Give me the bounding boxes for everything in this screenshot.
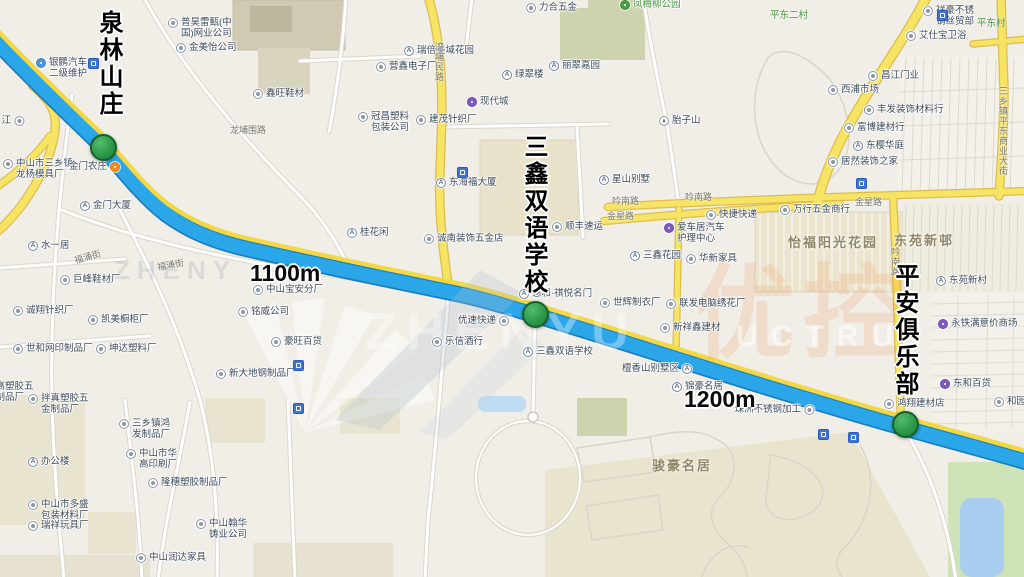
road-label: 福涌街	[156, 256, 185, 273]
bus-icon	[36, 58, 46, 68]
poi-label: 水一居	[41, 241, 70, 252]
poi-label: 拌真塑胶五金制品厂	[41, 394, 89, 415]
map-poi[interactable]: 艾仕宝卫浴	[906, 31, 967, 42]
poi-icon	[126, 449, 136, 459]
map-poi[interactable]: 新大地钢制品厂	[216, 369, 296, 380]
poi-label: 桂花闲	[360, 228, 389, 239]
poi-label: 惠和·祺悦名门	[532, 289, 592, 300]
map-poi[interactable]: 东海福大厦	[436, 178, 497, 189]
road-label: 金星路	[607, 209, 634, 222]
poi-icon	[424, 234, 434, 244]
tree-icon	[620, 0, 630, 10]
map-poi[interactable]: 凯美橱柜厂	[88, 315, 149, 326]
map-poi[interactable]: 东樱华庭	[853, 141, 904, 152]
road-label: 金星路	[855, 195, 882, 208]
map-poi[interactable]: 中山翰华铸业公司	[196, 519, 247, 540]
poi-label: 豪旺百货	[284, 337, 322, 348]
map-poi[interactable]: 乐信酒行	[432, 337, 483, 348]
poi-label: 金门大厦	[93, 201, 131, 212]
poi-label: 金门农庄	[69, 162, 107, 173]
bldg-icon	[28, 457, 38, 467]
bldg-icon	[523, 347, 533, 357]
map-poi[interactable]: 银鹏汽车二级维护	[36, 58, 87, 79]
mtn-icon	[659, 116, 669, 126]
poi-label: 永铁满意价商场	[951, 319, 1018, 330]
mall-icon	[940, 379, 950, 389]
poi-icon	[196, 519, 206, 529]
poi-label: 新大地钢制品厂	[229, 369, 296, 380]
poi-label: 三鑫花园	[643, 251, 681, 262]
poi-icon	[780, 205, 790, 215]
bldg-icon	[630, 251, 640, 261]
bldg-icon	[682, 364, 692, 374]
poi-label: 东和百货	[953, 379, 991, 390]
road-label: 福涌街	[73, 247, 103, 267]
map-poi[interactable]: 冠昌塑料包装公司	[358, 112, 409, 133]
poi-label: 胎子山	[672, 116, 701, 127]
poi-icon	[216, 369, 226, 379]
poi-label: 中山宝安分厂	[266, 285, 323, 296]
poi-icon	[884, 399, 894, 409]
map-poi[interactable]: 三鑫花园	[630, 251, 681, 262]
map-poi[interactable]: 东苑新村	[936, 276, 987, 287]
poi-icon	[88, 315, 98, 325]
bldg-icon	[599, 175, 609, 185]
marker-sanxin-school[interactable]	[522, 301, 549, 328]
map-poi[interactable]: 金门农庄	[69, 162, 120, 173]
map-poi[interactable]: 豪旺百货	[271, 337, 322, 348]
poi-icon	[96, 344, 106, 354]
map-poi[interactable]: 快捷快递	[706, 210, 757, 221]
map-poi[interactable]: 隆穗塑胶制品厂	[148, 478, 228, 489]
poi-label: 中山市三乡镇龙扬模具厂	[16, 159, 73, 180]
poi-label: 万行五金商行	[793, 205, 850, 216]
map-poi[interactable]: 铭威公司	[238, 307, 289, 318]
poi-label: 金美怡公司	[189, 43, 237, 54]
poi-icon	[416, 115, 426, 125]
map-poi[interactable]: 江	[1, 116, 24, 127]
bldg-icon	[502, 70, 512, 80]
map-poi[interactable]: 丰发装饰材料行	[864, 105, 944, 116]
poi-label: 华新家具	[699, 254, 737, 265]
poi-label: 银鹏汽车二级维护	[49, 58, 87, 79]
poi-label: 办公楼	[41, 457, 70, 468]
map-poi[interactable]: 檀香山别墅区	[622, 364, 692, 375]
map-poi[interactable]: 桂花闲	[347, 228, 389, 239]
poi-icon	[499, 316, 509, 326]
map-poi[interactable]: 珠洲不锈钢加工	[734, 405, 814, 416]
poi-label: 瑞祥玩具厂	[41, 521, 89, 532]
gate-sign-icon	[293, 403, 304, 414]
poi-icon	[432, 337, 442, 347]
poi-icon	[358, 112, 368, 122]
poi-label: 艾仕宝卫浴	[919, 31, 967, 42]
map-poi[interactable]: 水一居	[28, 241, 70, 252]
poi-icon	[28, 394, 38, 404]
poi-icon	[828, 157, 838, 167]
map-poi[interactable]: 世辉制衣厂	[600, 298, 661, 309]
poi-icon	[13, 306, 23, 316]
poi-label: 三鑫双语学校	[536, 347, 593, 358]
poi-label: 建茂针织厂	[429, 115, 477, 126]
bldg-icon	[853, 141, 863, 151]
poi-label: 江	[1, 116, 11, 127]
poi-label: 中山翰华铸业公司	[209, 519, 247, 540]
map-poi[interactable]: 营鑫电子厂	[376, 62, 437, 73]
poi-label: 丽翠嘉园	[562, 61, 600, 72]
poi-label: 巨峰鞋材厂	[73, 275, 121, 286]
map-poi[interactable]: 丽翠嘉园	[549, 61, 600, 72]
road-label: 吟南路	[685, 190, 712, 203]
poi-label: 中山市多盛包装材料厂	[41, 500, 89, 521]
map-poi[interactable]: 中山市华高印刷厂	[126, 449, 177, 470]
poi-icon	[844, 123, 854, 133]
bldg-icon	[347, 228, 357, 238]
mall-icon	[664, 223, 674, 233]
bldg-icon	[404, 46, 414, 56]
map-poi[interactable]: 世和网印制品厂	[13, 344, 93, 355]
poi-icon	[868, 71, 878, 81]
poi-label: 东海福大厦	[449, 178, 497, 189]
map-poi[interactable]: 金门大厦	[80, 201, 131, 212]
poi-label: 优速快递	[458, 316, 496, 327]
area-label: 骏豪名居	[652, 455, 712, 474]
poi-icon	[686, 254, 696, 264]
poi-icon	[14, 116, 24, 126]
map-poi[interactable]: 普昊雷甄(中国)网业公司	[168, 18, 232, 39]
bldg-icon	[28, 241, 38, 251]
poi-label: 三乡镇鸿发制品厂	[132, 419, 170, 440]
road-label: 三乡镇平东商业大街	[997, 86, 1010, 176]
road-label: 湾埔民路	[433, 42, 446, 82]
bldg-icon	[672, 382, 682, 392]
poi-label: 坤达塑料厂	[109, 344, 157, 355]
map-poi[interactable]: 华新家具	[686, 254, 737, 265]
poi-icon	[600, 298, 610, 308]
poi-icon	[136, 553, 146, 563]
poi-label: 普昊雷甄(中国)网业公司	[181, 18, 232, 39]
poi-label: 凯美橱柜厂	[101, 315, 149, 326]
map-poi[interactable]: 居然装饰之家	[828, 157, 898, 168]
gate-sign-icon	[818, 429, 829, 440]
poi-label: 诚翔针织厂	[26, 306, 74, 317]
bldg-icon	[936, 276, 946, 286]
poi-label: 居然装饰之家	[841, 157, 898, 168]
poi-label: 顺丰速运	[565, 222, 603, 233]
poi-icon	[376, 62, 386, 72]
map-poi[interactable]: 诚南装饰五金店	[424, 234, 504, 245]
map-poi[interactable]: 中山市三乡镇龙扬模具厂	[3, 159, 73, 180]
poi-label: 快捷快递	[719, 210, 757, 221]
poi-label: 西浦市场	[841, 85, 879, 96]
area-label: 东苑新邨	[894, 230, 954, 249]
poi-icon	[148, 478, 158, 488]
poi-label: 世辉制衣厂	[613, 298, 661, 309]
bldg-icon	[80, 201, 90, 211]
poi-label: 诚南装饰五金店	[437, 234, 504, 245]
poi-icon	[3, 159, 13, 169]
map-poi[interactable]: 诚翔针织厂	[13, 306, 74, 317]
poi-label: 现代城	[480, 97, 509, 108]
village-label: 平东二村	[770, 7, 808, 21]
poi-icon	[666, 299, 676, 309]
poi-icon	[923, 6, 933, 16]
map-poi[interactable]: 优速快递	[458, 316, 509, 327]
poi-icon	[253, 285, 263, 295]
gate-sign-icon	[937, 10, 948, 21]
map-poi[interactable]: 三鑫双语学校	[523, 347, 593, 358]
road-label: 吟南路	[889, 247, 902, 277]
map-poi[interactable]: 新祥鑫建材	[660, 323, 721, 334]
marker-quanlin-resort[interactable]	[90, 134, 117, 161]
gate-sign-icon	[88, 58, 99, 69]
map-poi[interactable]: 西浦市场	[828, 85, 879, 96]
poi-label: 丰发装饰材料行	[877, 105, 944, 116]
village-label: 平东村	[977, 15, 1006, 29]
poi-icon	[660, 323, 670, 333]
poi-label: 珠洲不锈钢加工	[734, 405, 801, 416]
poi-label: 爱车居汽车护理中心	[677, 223, 725, 244]
poi-icon	[13, 344, 23, 354]
map-poi[interactable]: 永铁满意价商场	[938, 319, 1018, 330]
poi-label: 乐信酒行	[445, 337, 483, 348]
poi-label: 鑫旺鞋材	[266, 89, 304, 100]
poi-label: 绿翠楼	[515, 70, 544, 81]
poi-label: 中山市华高印刷厂	[139, 449, 177, 470]
map-poi[interactable]: 凤梅柳公园	[620, 0, 681, 11]
map-poi[interactable]: 惠和·祺悦名门	[519, 289, 592, 300]
map-poi[interactable]: 建茂针织厂	[416, 115, 477, 126]
poi-label: 东苑新村	[949, 276, 987, 287]
bldg-icon	[436, 178, 446, 188]
poi-label: 联发电脑绣花厂	[679, 299, 746, 310]
poi-icon	[906, 31, 916, 41]
map-poi[interactable]: 胎子山	[659, 116, 701, 127]
poi-label: 锦豪名居	[685, 382, 723, 393]
poi-icon	[864, 105, 874, 115]
poi-icon	[552, 222, 562, 232]
map-labels-layer: 银鹏汽车二级维护普昊雷甄(中国)网业公司金美怡公司鑫旺鞋材中山市三乡镇龙扬模具厂…	[0, 0, 1024, 577]
map-poi[interactable]: 锦豪名居	[672, 382, 723, 393]
poi-icon	[28, 500, 38, 510]
map-poi[interactable]: 绿翠楼	[502, 70, 544, 81]
poi-label: 星山别墅	[612, 175, 650, 186]
road-label: 龙埔围路	[230, 123, 266, 136]
map-poi[interactable]: 金美怡公司	[176, 43, 237, 54]
poi-icon	[60, 275, 70, 285]
poi-label: 昌江门业	[881, 71, 919, 82]
poi-label: 铭威公司	[251, 307, 289, 318]
poi-label: 世和网印制品厂	[26, 344, 93, 355]
map-poi[interactable]: 拌真塑胶五金制品厂	[28, 394, 89, 415]
bldg-icon	[549, 61, 559, 71]
map-poi[interactable]: 力合五金	[526, 3, 577, 14]
poi-label: 东樱华庭	[866, 141, 904, 152]
bldg-icon	[519, 289, 529, 299]
poi-icon	[176, 43, 186, 53]
poi-label: 中山润达家具	[149, 553, 206, 564]
poi-label: 凤梅柳公园	[633, 0, 681, 11]
poi-label: 营鑫电子厂	[389, 62, 437, 73]
poi-icon	[994, 397, 1004, 407]
poi-label: 檀香山别墅区	[622, 364, 679, 375]
map-poi[interactable]: 星山别墅	[599, 175, 650, 186]
poi-label: 和园百货	[1007, 397, 1024, 408]
poi-icon	[119, 419, 129, 429]
map-poi[interactable]: 东和百货	[940, 379, 991, 390]
road-label: 吟南路	[612, 194, 639, 207]
poi-icon	[238, 307, 248, 317]
poi-label: 隆穗塑胶制品厂	[161, 478, 228, 489]
poi-icon	[28, 521, 38, 531]
map-poi[interactable]: 鸿翔建材店	[884, 399, 945, 410]
map-poi[interactable]: 联发电脑绣花厂	[666, 299, 746, 310]
mall-icon	[938, 319, 948, 329]
gate-sign-icon	[856, 178, 867, 189]
map-poi[interactable]: 中山润达家具	[136, 553, 206, 564]
poi-icon	[253, 89, 263, 99]
map-viewport[interactable]: 优控 ZHENYU UCTRU ZHENY 银鹏汽车二级维护普昊雷甄(中国)网业…	[0, 0, 1024, 577]
map-poi[interactable]: 巨峰鞋材厂	[60, 275, 121, 286]
area-label: 怡福阳光花园	[788, 232, 878, 251]
map-poi[interactable]: 中山宝安分厂	[253, 285, 323, 296]
poi-label: 鸿翔建材店	[897, 399, 945, 410]
map-poi[interactable]: 现代城	[467, 97, 509, 108]
poi-icon	[526, 3, 536, 13]
map-poi[interactable]: 中山市多盛包装材料厂	[28, 500, 89, 521]
map-poi[interactable]: 坤达塑料厂	[96, 344, 157, 355]
map-poi[interactable]: 办公楼	[28, 457, 70, 468]
map-poi[interactable]: 昌江门业	[868, 71, 919, 82]
mall-icon	[467, 97, 477, 107]
poi-icon	[271, 337, 281, 347]
gate-sign-icon	[848, 432, 859, 443]
poi-label: 富博建材行	[857, 123, 905, 134]
poi-label: 冠昌塑料包装公司	[371, 112, 409, 133]
orange-icon	[110, 162, 120, 172]
poi-icon	[828, 85, 838, 95]
gate-sign-icon	[457, 167, 468, 178]
poi-label: 力合五金	[539, 3, 577, 14]
poi-icon	[706, 210, 716, 220]
map-poi[interactable]: 鑫旺鞋材	[253, 89, 304, 100]
map-poi[interactable]: 三乡镇鸿发制品厂	[119, 419, 170, 440]
gate-sign-icon	[293, 360, 304, 371]
map-poi[interactable]: 瑞祥玩具厂	[28, 521, 89, 532]
poi-icon	[168, 18, 178, 28]
marker-pingan-club[interactable]	[892, 411, 919, 438]
poi-label: 新祥鑫建材	[673, 323, 721, 334]
map-poi[interactable]: 祥豪不锈钢丝贸部	[923, 6, 974, 27]
poi-icon	[804, 405, 814, 415]
map-poi[interactable]: 顺丰速运	[552, 222, 603, 233]
map-poi[interactable]: 富博建材行	[844, 123, 905, 134]
map-poi[interactable]: 和园百货	[994, 397, 1024, 408]
map-poi[interactable]: 爱车居汽车护理中心	[664, 223, 725, 244]
map-poi[interactable]: 万行五金商行	[780, 205, 850, 216]
